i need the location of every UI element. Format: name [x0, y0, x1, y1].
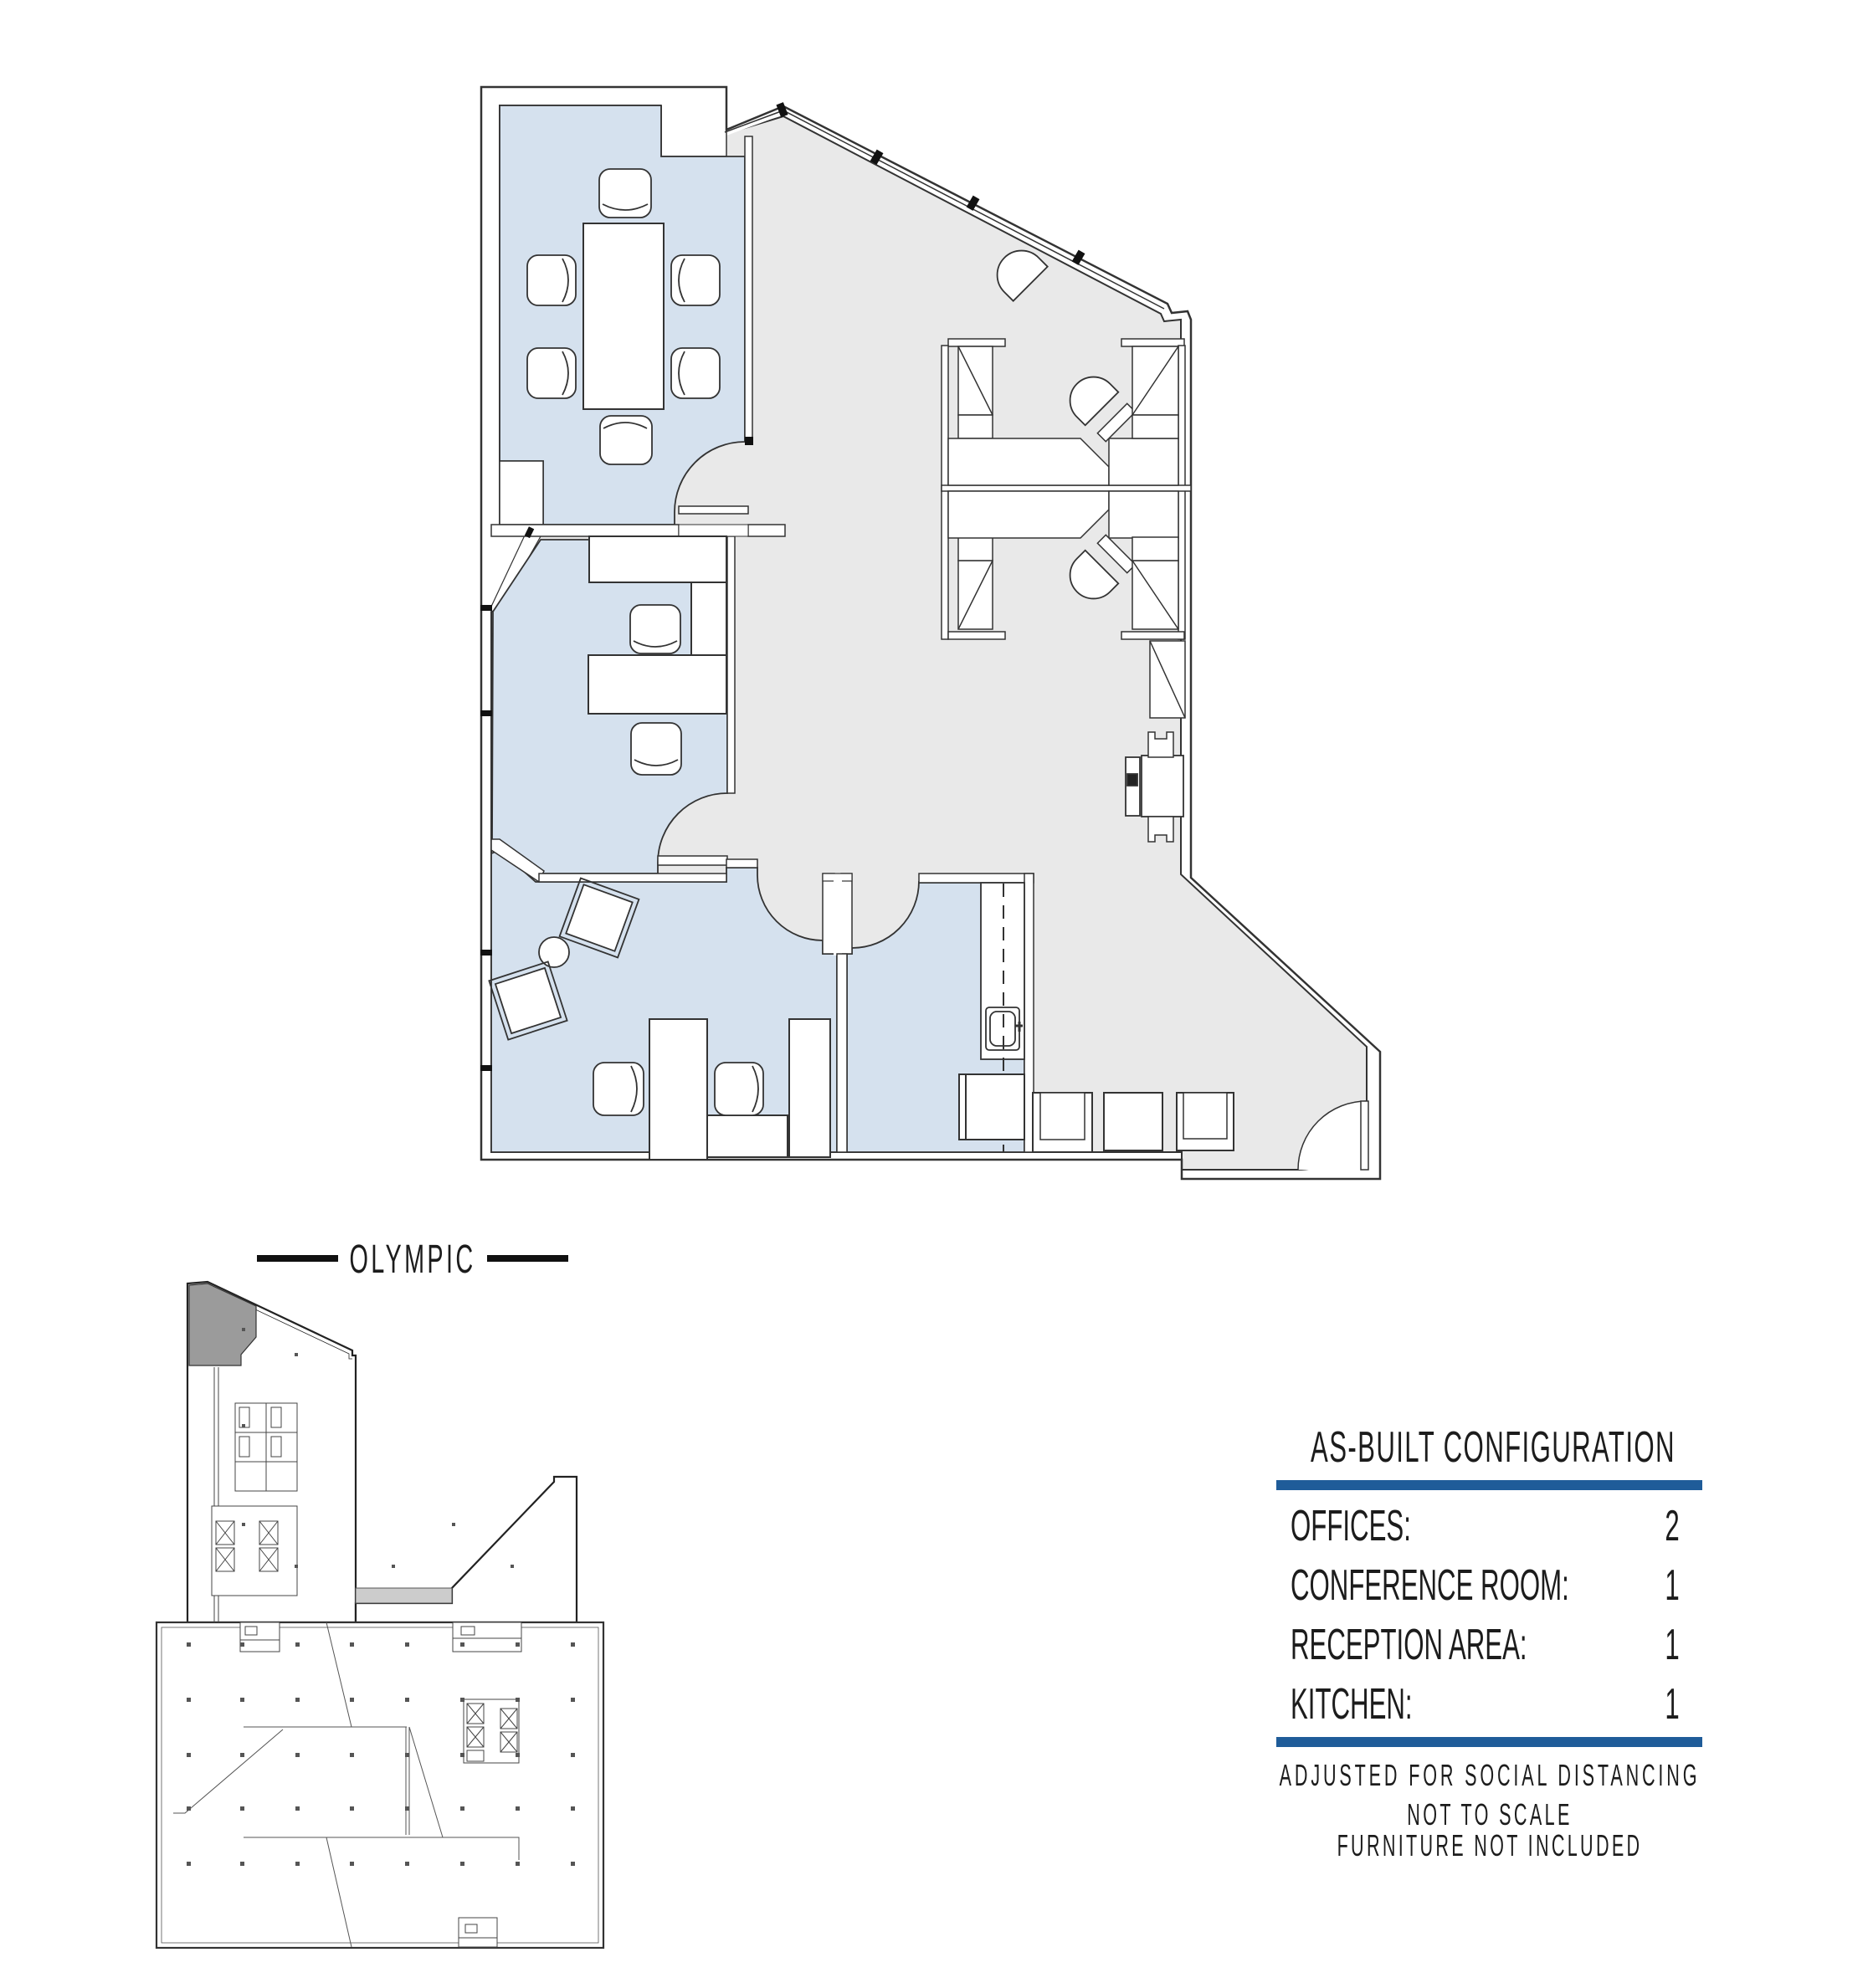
svg-text:KITCHEN:: KITCHEN: [1291, 1680, 1413, 1729]
svg-text:NOT TO SCALE: NOT TO SCALE [1407, 1798, 1572, 1832]
svg-text:AS-BUILT CONFIGURATION: AS-BUILT CONFIGURATION [1311, 1423, 1676, 1472]
svg-text:1: 1 [1665, 1680, 1679, 1729]
svg-text:1: 1 [1665, 1561, 1679, 1610]
svg-text:RECEPTION AREA:: RECEPTION AREA: [1291, 1621, 1527, 1669]
svg-text:OLYMPIC: OLYMPIC [349, 1237, 475, 1282]
svg-text:ADJUSTED FOR SOCIAL DISTANCING: ADJUSTED FOR SOCIAL DISTANCING [1280, 1759, 1701, 1792]
svg-text:FURNITURE NOT INCLUDED: FURNITURE NOT INCLUDED [1337, 1829, 1643, 1862]
svg-text:1: 1 [1665, 1621, 1679, 1669]
svg-text:OFFICES:: OFFICES: [1291, 1502, 1411, 1550]
svg-text:CONFERENCE ROOM:: CONFERENCE ROOM: [1291, 1561, 1569, 1610]
svg-text:2: 2 [1665, 1502, 1679, 1550]
